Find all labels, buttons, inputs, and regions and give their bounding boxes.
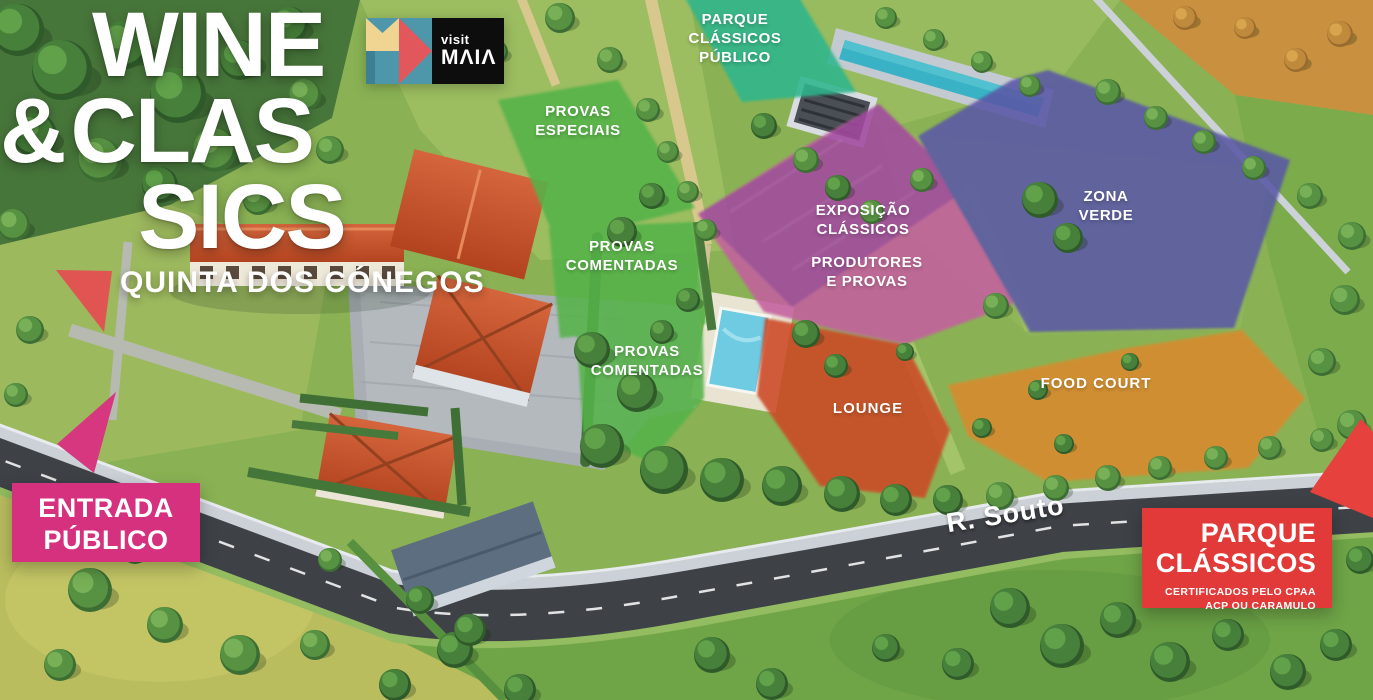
- zone-label-exposicao-classicos: EXPOSIÇÃO CLÁSSICOS: [768, 201, 958, 239]
- callout-title: PARQUE CLÁSSICOS: [1152, 519, 1316, 578]
- zone-label-line: PROVAS: [552, 342, 742, 361]
- visit-maia-wordmark: visit MΛIΛ: [432, 18, 504, 84]
- zone-label-produtores-e-provas: PRODUTORES E PROVAS: [768, 253, 966, 291]
- parque-classicos-callout: PARQUE CLÁSSICOS CERTIFICADOS PELO CPAA …: [1142, 508, 1332, 608]
- event-map: WINE &CLAS SICS QUINTA DOS CÓNEGOS visit…: [0, 0, 1373, 700]
- zone-label-provas-comentadas-1: PROVAS COMENTADAS: [527, 237, 717, 275]
- zone-label-line: EXPOSIÇÃO: [768, 201, 958, 220]
- zone-label-line: PRODUTORES: [768, 253, 966, 272]
- zone-label-line: PÚBLICO: [655, 48, 815, 67]
- callout-note-line: ACP OU CARAMULO: [1152, 600, 1316, 614]
- zone-label-provas-comentadas-2: PROVAS COMENTADAS: [552, 342, 742, 380]
- zone-label-food-court: FOOD COURT: [1008, 374, 1184, 393]
- zone-label-line: PROVAS: [488, 102, 668, 121]
- zone-label-line: PROVAS: [527, 237, 717, 256]
- zone-label-parque-classicos-publico: PARQUE CLÁSSICOS PÚBLICO: [655, 10, 815, 68]
- zone-label-line: FOOD COURT: [1008, 374, 1184, 393]
- zone-label-line: E PROVAS: [768, 272, 966, 291]
- event-title-line3: SICS: [138, 174, 345, 260]
- zone-label-line: PARQUE: [655, 10, 815, 29]
- zone-label-line: ESPECIAIS: [488, 121, 668, 140]
- visit-label: visit: [441, 33, 504, 47]
- zone-label-line: VERDE: [1028, 206, 1184, 225]
- venue-name: QUINTA DOS CÓNEGOS: [120, 266, 485, 300]
- callout-line: PARQUE: [1152, 519, 1316, 549]
- zone-label-line: CLÁSSICOS: [655, 29, 815, 48]
- title-ampersand: &: [0, 80, 64, 182]
- event-title-line1: WINE: [92, 2, 324, 88]
- callout-note: CERTIFICADOS PELO CPAA ACP OU CARAMULO: [1152, 586, 1316, 613]
- title-sics: SICS: [138, 166, 345, 268]
- callout-line: CLÁSSICOS: [1152, 549, 1316, 579]
- entrada-publico-callout: ENTRADA PÚBLICO: [12, 483, 200, 562]
- zone-label-line: COMENTADAS: [552, 361, 742, 380]
- zone-label-line: CLÁSSICOS: [768, 220, 958, 239]
- zone-label-line: COMENTADAS: [527, 256, 717, 275]
- callout-line: ENTRADA: [12, 492, 200, 524]
- event-title-line2: &CLAS: [0, 88, 313, 174]
- maia-mosaic-icon: [366, 18, 432, 84]
- callout-line: PÚBLICO: [12, 524, 200, 556]
- maia-label: MΛIΛ: [441, 47, 504, 69]
- zone-label-lounge: LOUNGE: [788, 399, 948, 418]
- zone-label-zona-verde: ZONA VERDE: [1028, 187, 1184, 225]
- zone-label-line: LOUNGE: [788, 399, 948, 418]
- callout-note-line: CERTIFICADOS PELO CPAA: [1152, 586, 1316, 600]
- zone-label-provas-especiais: PROVAS ESPECIAIS: [488, 102, 668, 140]
- visit-maia-logo: visit MΛIΛ: [366, 18, 504, 84]
- zone-label-line: ZONA: [1028, 187, 1184, 206]
